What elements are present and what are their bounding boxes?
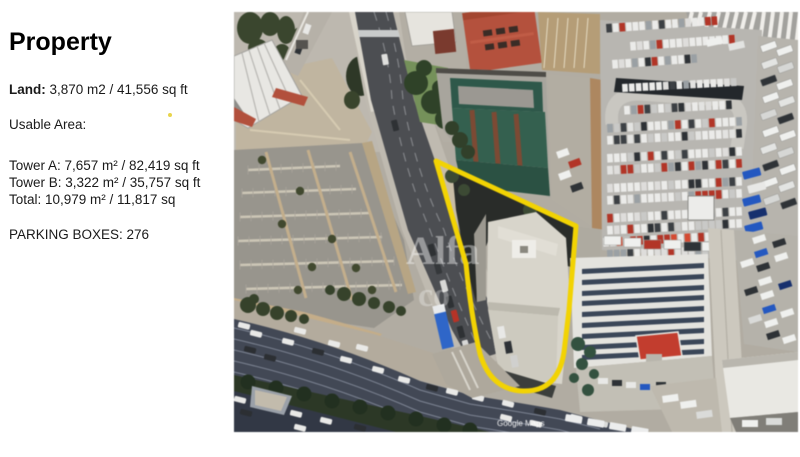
- svg-text:Google Maps: Google Maps: [497, 419, 545, 428]
- svg-text:co: co: [418, 277, 450, 314]
